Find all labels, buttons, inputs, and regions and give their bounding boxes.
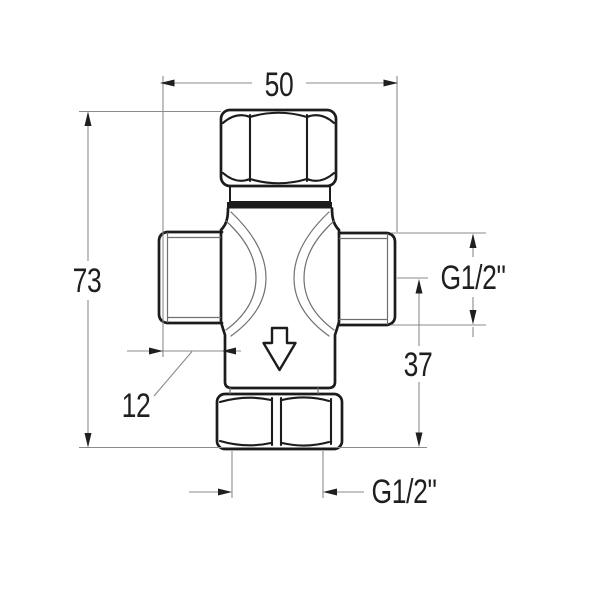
valve-dimension-drawing: 50 73 12 [0,0,600,600]
dim-arrowhead-down [85,433,92,448]
dim-label-side-port-length: 12 [122,387,151,425]
body-internal-venturi-curves [226,212,334,336]
dim-arrowhead-right [218,489,232,496]
bottom-hex-nut-facet-arcs [220,397,329,445]
flow-direction-arrow-icon [264,328,296,370]
dim-arrowhead-left [323,489,337,496]
dim-arrowhead-right [149,348,163,355]
bottom-hex-nut-facet-lines [272,398,331,445]
right-port-outline [339,233,395,325]
dim-arrowhead-right [384,80,399,87]
right-port-thread-lines [340,234,388,324]
top-collar [230,186,330,202]
dim-arrowhead-up [470,234,477,249]
bottom-hex-nut-outline [217,394,342,449]
left-port-outline [159,232,222,323]
dim-arrowhead-down [416,433,423,448]
valve-outline-layer [159,110,395,449]
dim-label-overall-width: 50 [265,66,294,104]
dim-arrowhead-left [160,80,175,87]
dim-arrowhead-up [416,279,423,294]
dim-arrowhead-up [85,112,92,127]
bottom-hex-nut [217,394,342,449]
dim-label-overall-height: 73 [73,262,102,300]
top-seal-band [227,202,332,209]
dim-label-side-thread-size: G1/2" [441,259,506,297]
left-port-thread-lines [168,233,221,322]
valve-drawing-svg: 50 73 12 [0,0,600,600]
dim-bottom-thread-lines [189,451,364,498]
dim-overall-width-lines [161,76,397,357]
dim-bottom-thread-size: G1/2" [189,451,436,511]
dim-label-bottom-thread-size: G1/2" [372,473,437,511]
top-hex-nut [221,110,336,186]
dim-side-thread-size: G1/2" [391,233,505,337]
top-hex-nut-facet-arcs [223,113,334,184]
dim-side-port-length: 12 [122,348,241,425]
dim-label-outlet-center-to-base: 37 [404,346,433,384]
top-hex-nut-facet-lines [250,115,307,181]
dim-outlet-center-to-base: 37 [397,278,432,447]
top-hex-nut-outline [221,110,336,186]
dim-arrowhead-down [470,310,477,325]
